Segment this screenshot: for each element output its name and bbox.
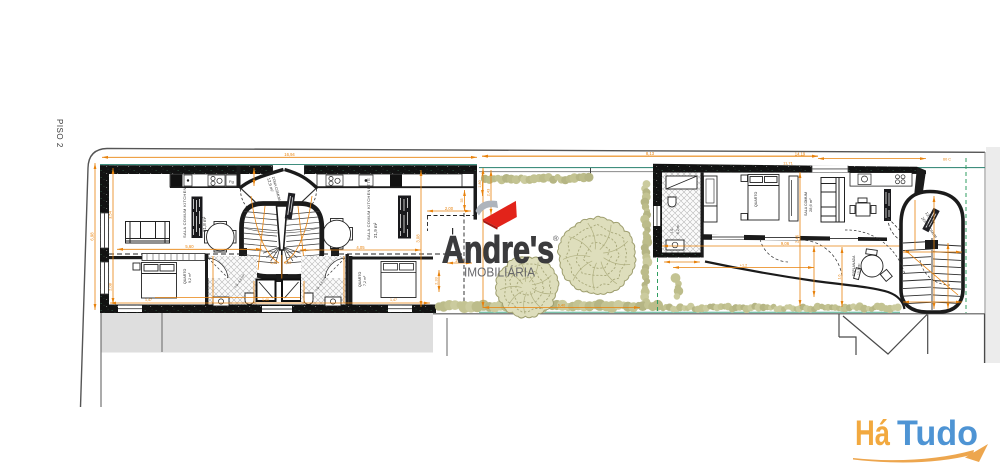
svg-text:2,46: 2,46 bbox=[795, 234, 800, 243]
svg-text:60 C: 60 C bbox=[943, 158, 951, 162]
svg-text:Fg: Fg bbox=[229, 179, 234, 184]
svg-text:2,00: 2,00 bbox=[445, 206, 454, 211]
svg-text:ESPLANADA: ESPLANADA bbox=[852, 255, 856, 276]
svg-text:6,40: 6,40 bbox=[558, 303, 565, 307]
svg-text:3,54: 3,54 bbox=[108, 210, 113, 219]
svg-text:5,60: 5,60 bbox=[185, 244, 194, 249]
svg-text:1,40: 1,40 bbox=[270, 261, 277, 265]
svg-text:1,47: 1,47 bbox=[390, 298, 397, 302]
svg-text:2,08: 2,08 bbox=[108, 282, 113, 291]
svg-text:21,9 m²: 21,9 m² bbox=[373, 222, 378, 238]
svg-text:21,8 m²: 21,8 m² bbox=[202, 216, 207, 232]
svg-text:35: 35 bbox=[460, 199, 464, 203]
svg-text:8,13: 8,13 bbox=[646, 151, 655, 156]
svg-text:Há: Há bbox=[855, 414, 890, 453]
svg-text:1,6: 1,6 bbox=[838, 275, 842, 280]
svg-text:1,40: 1,40 bbox=[262, 298, 269, 302]
svg-text:10,9 m²: 10,9 m² bbox=[857, 263, 861, 275]
svg-text:+1,2: +1,2 bbox=[740, 263, 748, 267]
svg-text:1,40: 1,40 bbox=[284, 261, 291, 265]
svg-text:14,19: 14,19 bbox=[795, 152, 806, 157]
svg-text:I.S.: I.S. bbox=[670, 228, 674, 233]
svg-text:7,2 m²: 7,2 m² bbox=[363, 275, 367, 286]
svg-text:®: ® bbox=[553, 234, 559, 243]
svg-text:28,6 m²: 28,6 m² bbox=[808, 198, 813, 212]
svg-text:1,80: 1,80 bbox=[478, 180, 482, 187]
svg-text:Tudo: Tudo bbox=[897, 414, 978, 453]
svg-text:SALA COMUM KITCHEN: SALA COMUM KITCHEN bbox=[182, 187, 187, 238]
svg-text:2,43: 2,43 bbox=[487, 189, 491, 196]
svg-text:1,47: 1,47 bbox=[145, 298, 152, 302]
svg-text:IMOBILIÁRIA: IMOBILIÁRIA bbox=[464, 265, 536, 280]
svg-text:SALA COMUM KITCHENETTE: SALA COMUM KITCHENETTE bbox=[366, 178, 371, 240]
svg-text:3,08: 3,08 bbox=[416, 234, 421, 243]
svg-text:QUARTO: QUARTO bbox=[358, 272, 362, 287]
svg-text:QUARTO: QUARTO bbox=[754, 192, 758, 207]
svg-text:2,33: 2,33 bbox=[435, 277, 439, 284]
svg-text:11,71: 11,71 bbox=[783, 161, 793, 166]
svg-text:16,94: 16,94 bbox=[284, 152, 295, 157]
svg-text:6,98: 6,98 bbox=[90, 232, 95, 241]
svg-text:4,05: 4,05 bbox=[356, 245, 365, 250]
svg-text:9,2 m²: 9,2 m² bbox=[188, 272, 192, 283]
svg-text:6,2 m²: 6,2 m² bbox=[676, 224, 680, 234]
svg-text:QUARTO: QUARTO bbox=[183, 269, 187, 284]
svg-text:PISO 2: PISO 2 bbox=[55, 119, 64, 148]
svg-text:9,06: 9,06 bbox=[781, 241, 790, 246]
